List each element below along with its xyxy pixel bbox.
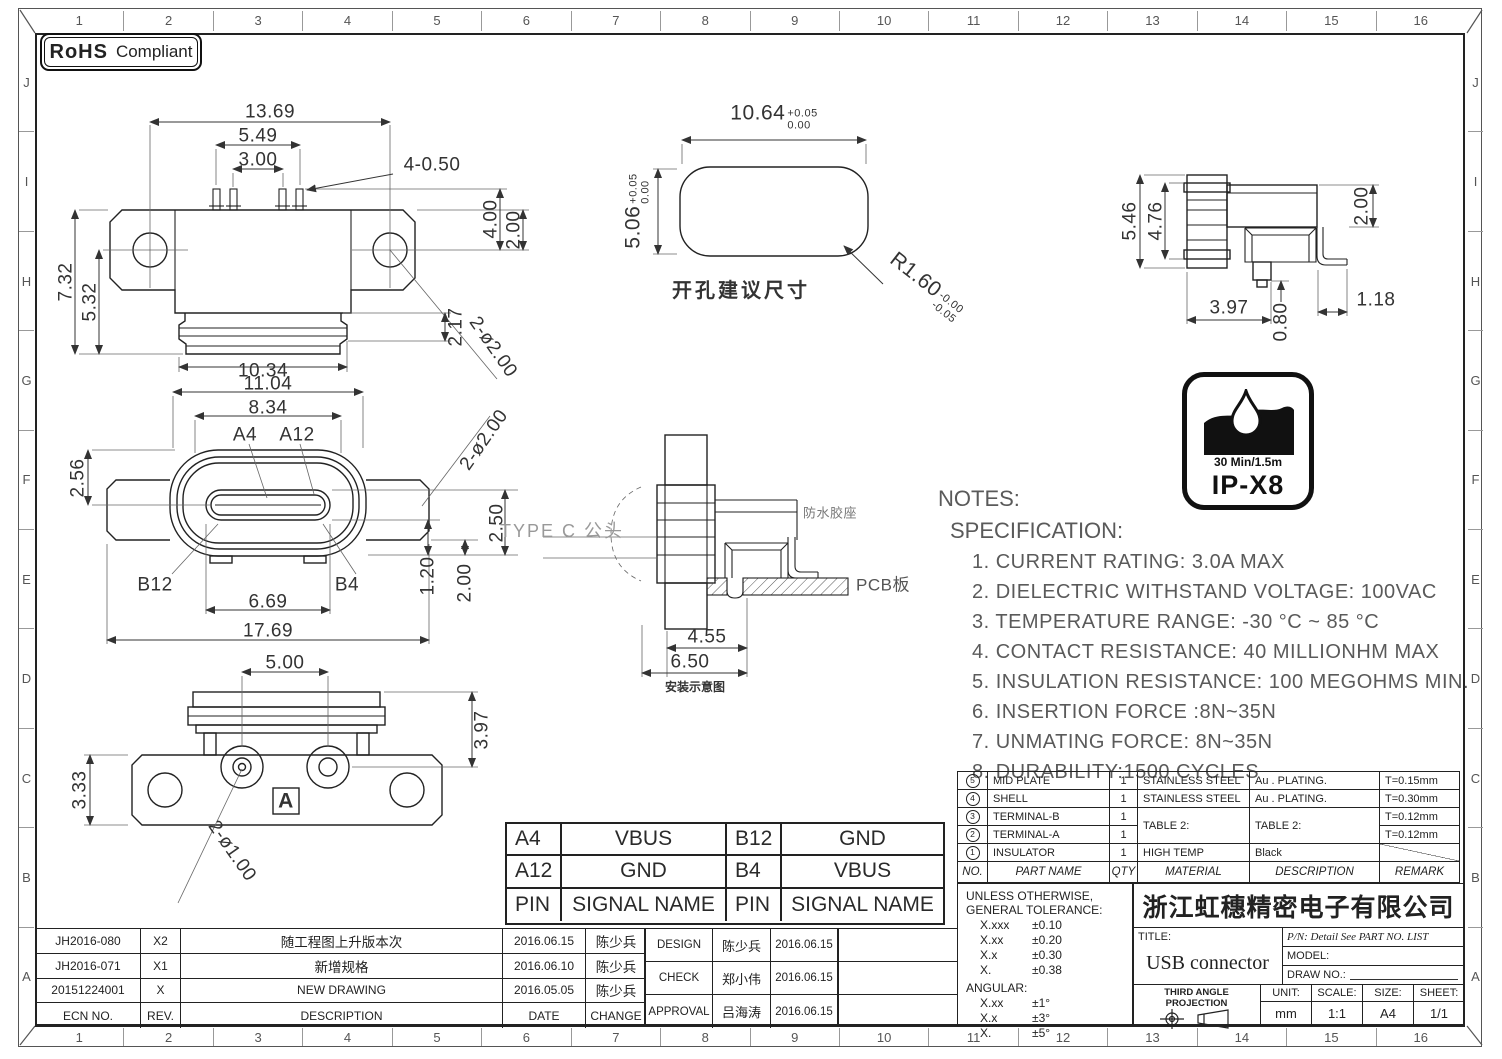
dim-side-118: 1.18 <box>1357 291 1396 310</box>
bom-material: STAINLESS STEEL <box>1138 772 1250 790</box>
zone-row: B <box>19 827 34 926</box>
bom-qty: 1 <box>1110 772 1138 790</box>
pin-header: SIGNAL NAME <box>562 889 727 921</box>
pin-cell: B4 <box>727 856 782 888</box>
rev-rev: X <box>141 979 181 1004</box>
bom-part: MID PLATE <box>988 772 1110 790</box>
projection-label: THIRD ANGLE PROJECTION <box>1133 987 1260 1009</box>
tolerance-line1: UNLESS OTHERWISE, <box>966 889 1133 903</box>
bom-desc-span: TABLE 2: <box>1250 808 1380 844</box>
angular-row: X.x±3° <box>980 1011 1133 1025</box>
zone-col: 3 <box>213 1028 302 1046</box>
size-value: A4 <box>1363 1002 1413 1025</box>
zone-col: 3 <box>213 11 302 31</box>
part-number: P/N: Detail See PART NO. LIST <box>1283 928 1464 947</box>
dim-face-669: 6.69 <box>249 593 288 612</box>
zone-row: A <box>19 927 34 1026</box>
signature-empty-cells <box>838 928 958 1027</box>
pin-signal-table: A4 VBUS B12 GND A12 GND B4 VBUS PIN SIGN… <box>505 822 945 925</box>
zone-row: J <box>19 33 34 131</box>
pin-cell: GND <box>782 824 943 856</box>
dim-face-120: 1.20 <box>419 557 438 596</box>
bom-no: 5 <box>958 772 988 790</box>
bom-remark: T=0.12mm <box>1380 826 1459 844</box>
dim-front-1369: 13.69 <box>245 103 295 122</box>
approval-name: 郑小伟 <box>713 962 771 995</box>
zone-col: 1 <box>35 1028 123 1046</box>
rev-header-desc: DESCRIPTION <box>181 1003 503 1028</box>
scale-cell: SCALE: 1:1 <box>1312 985 1363 1025</box>
zone-col: 12 <box>1018 11 1107 31</box>
bom-qty: 1 <box>1110 826 1138 844</box>
rev-ecn: JH2016-071 <box>36 954 141 979</box>
dim-cutout-height-value: 5.06 <box>621 206 644 249</box>
notes-block: NOTES: SPECIFICATION: 1. CURRENT RATING:… <box>938 486 1478 784</box>
zone-col: 5 <box>392 1028 481 1046</box>
mount-plug-label: TYPE C 公头 <box>500 522 624 540</box>
mount-caption: 安装示意图 <box>665 678 725 695</box>
pin-header: PIN <box>727 889 782 921</box>
zone-col: 16 <box>1376 11 1465 31</box>
ipx8-rating: 30 Min/1.5m <box>1187 455 1309 469</box>
dim-front-300: 3.00 <box>239 151 278 170</box>
rev-desc: 随工程图上升版本次 <box>181 929 503 954</box>
size-cell: SIZE: A4 <box>1363 985 1414 1025</box>
dim-face-1104: 11.04 <box>244 375 293 394</box>
title-block: 浙江虹穗精密电子有限公司 TITLE: USB connector P/N: D… <box>1132 883 1465 1027</box>
rev-by: 陈少兵 <box>586 979 646 1004</box>
zone-col: 14 <box>1197 11 1286 31</box>
dim-bottom-397: 3.97 <box>473 711 492 750</box>
compliant-label: Compliant <box>116 42 193 62</box>
approval-role: APPROVAL <box>646 995 713 1028</box>
bom-table: 5 MID PLATE 1 STAINLESS STEEL Au . PLATI… <box>957 771 1460 883</box>
zone-col: 8 <box>660 1028 749 1046</box>
zone-row: C <box>19 728 34 827</box>
unit-cell: UNIT: mm <box>1261 985 1312 1025</box>
pin-cell: A12 <box>507 856 562 888</box>
dim-front-732: 7.32 <box>57 263 76 302</box>
dim-face-256: 2.56 <box>69 459 88 498</box>
tolerance-row: X.xxx±0.10 <box>980 918 1133 932</box>
note-item: 5. INSULATION RESISTANCE: 100 MEGOHMS MI… <box>972 671 1478 694</box>
third-angle-projection-icon <box>1154 1009 1240 1029</box>
zone-row: A <box>1468 927 1483 1026</box>
dim-cutout-width-tol: +0.050.00 <box>787 108 817 131</box>
bom-no: 4 <box>958 790 988 808</box>
rev-rev: X2 <box>141 929 181 954</box>
zone-col: 2 <box>123 1028 212 1046</box>
notes-subtitle: SPECIFICATION: <box>950 518 1478 544</box>
bom-material: HIGH TEMP <box>1138 844 1250 862</box>
tolerance-block: UNLESS OTHERWISE, GENERAL TOLERANCE: X.x… <box>957 883 1134 1027</box>
zone-ruler-top: 12345678910111213141516 <box>35 11 1465 31</box>
dim-mount-455: 4.55 <box>688 628 727 647</box>
zone-col: 15 <box>1286 11 1375 31</box>
zone-col: 4 <box>302 1028 391 1046</box>
rev-header-ecn: ECN NO. <box>36 1003 141 1028</box>
cutout-caption: 开孔建议尺寸 <box>672 274 810 303</box>
bom-part: TERMINAL-B <box>988 808 1110 826</box>
drawing-title: USB connector <box>1133 952 1282 975</box>
title-cell: TITLE: USB connector <box>1133 928 1283 984</box>
bom-part: TERMINAL-A <box>988 826 1110 844</box>
dim-cutout-width-value: 10.64 <box>730 101 785 124</box>
pin-cell: A4 <box>507 824 562 856</box>
rev-date: 2016.05.05 <box>503 979 586 1004</box>
zone-col: 15 <box>1286 1028 1375 1046</box>
bom-header-desc: DESCRIPTION <box>1250 862 1380 882</box>
zone-col: 10 <box>839 11 928 31</box>
dim-front-200: 2.00 <box>505 211 524 250</box>
bom-remark: T=0.12mm <box>1380 808 1459 826</box>
bom-remark: T=0.30mm <box>1380 790 1459 808</box>
zone-row: B <box>1468 827 1483 926</box>
rev-desc: NEW DRAWING <box>181 979 503 1004</box>
angular-label: ANGULAR: <box>966 981 1133 995</box>
sheet-value: 1/1 <box>1414 1002 1464 1025</box>
zone-col: 13 <box>1107 11 1196 31</box>
dim-front-549: 5.49 <box>239 127 278 146</box>
note-item: 3. TEMPERATURE RANGE: -30 °C ~ 85 °C <box>972 611 1478 634</box>
rohs-badge: RoHS Compliant <box>40 33 202 71</box>
bom-part: SHELL <box>988 790 1110 808</box>
zone-col: 9 <box>750 11 839 31</box>
bom-material: STAINLESS STEEL <box>1138 790 1250 808</box>
draw-no-line <box>1350 971 1458 980</box>
approval-role: DESIGN <box>646 929 713 962</box>
bom-qty: 1 <box>1110 790 1138 808</box>
approval-name: 吕海涛 <box>713 995 771 1028</box>
dim-front-532: 5.32 <box>81 283 100 322</box>
title-label: TITLE: <box>1138 931 1171 943</box>
drawing-sheet: 12345678910111213141516 1234567891011121… <box>0 0 1502 1059</box>
bom-desc: Au . PLATING. <box>1250 772 1380 790</box>
draw-no-label: DRAW NO.: <box>1283 966 1464 984</box>
rev-by: 陈少兵 <box>586 929 646 954</box>
rohs-badge-inner: RoHS Compliant <box>44 37 198 67</box>
zone-ruler-left: JIHGFEDCBA <box>19 33 34 1026</box>
pin-label-a12: A12 <box>279 426 314 445</box>
company-name: 浙江虹穗精密电子有限公司 <box>1133 884 1464 928</box>
angular-row: X.xx±1° <box>980 996 1133 1010</box>
approval-date: 2016.06.15 <box>771 929 837 962</box>
bom-header-material: MATERIAL <box>1138 862 1250 882</box>
pin-label-b4: B4 <box>335 576 359 595</box>
note-item: 6. INSERTION FORCE :8N~35N <box>972 701 1478 724</box>
bom-no: 3 <box>958 808 988 826</box>
tolerance-row: X.x±0.30 <box>980 948 1133 962</box>
model-label: MODEL: <box>1283 947 1464 966</box>
rev-header-date: DATE <box>503 1003 586 1028</box>
rev-rev: X1 <box>141 954 181 979</box>
dim-cutout-height: 5.06+0.050.00 <box>622 173 651 248</box>
rev-desc: 新增规格 <box>181 954 503 979</box>
zone-col: 1 <box>35 11 123 31</box>
pin-cell: B12 <box>727 824 782 856</box>
bom-part: INSULATOR <box>988 844 1110 862</box>
zone-col: 16 <box>1376 1028 1465 1046</box>
dim-face-1769: 17.69 <box>243 622 293 641</box>
pin-header: SIGNAL NAME <box>782 889 943 921</box>
dim-side-476: 4.76 <box>1147 202 1166 241</box>
pin-label-a4: A4 <box>233 426 257 445</box>
scale-value: 1:1 <box>1312 1002 1362 1025</box>
tolerance-row: X.±0.38 <box>980 963 1133 977</box>
zone-col: 11 <box>928 11 1017 31</box>
bottom-view-drawing <box>60 655 490 905</box>
zone-col: 6 <box>481 1028 570 1046</box>
dim-side-397: 3.97 <box>1210 299 1249 318</box>
approval-date: 2016.06.15 <box>771 962 837 995</box>
zone-col: 7 <box>571 11 660 31</box>
rohs-label: RoHS <box>50 41 108 64</box>
rev-date: 2016.06.15 <box>503 929 586 954</box>
bom-qty: 1 <box>1110 844 1138 862</box>
sheet-cell: SHEET: 1/1 <box>1414 985 1464 1025</box>
note-item: 2. DIELECTRIC WITHSTAND VOLTAGE: 100VAC <box>972 581 1478 604</box>
rev-ecn: JH2016-080 <box>36 929 141 954</box>
pin-cell: VBUS <box>562 824 727 856</box>
bom-header-qty: QTY <box>1110 862 1138 882</box>
projection-cell: THIRD ANGLE PROJECTION <box>1133 985 1261 1025</box>
zone-row: I <box>19 131 34 230</box>
notes-title: NOTES: <box>938 486 1478 512</box>
section-label-a: A <box>278 791 294 812</box>
bom-no: 2 <box>958 826 988 844</box>
approval-table: DESIGN 陈少兵 2016.06.15 CHECK 郑小伟 2016.06.… <box>645 928 838 1027</box>
zone-row: J <box>1468 33 1483 131</box>
dim-bottom-333: 3.33 <box>71 771 90 810</box>
approval-role: CHECK <box>646 962 713 995</box>
pin-label-b12: B12 <box>137 576 172 595</box>
note-item: 1. CURRENT RATING: 3.0A MAX <box>972 551 1478 574</box>
dim-bottom-500: 5.00 <box>266 654 305 673</box>
bom-header-remark: REMARK <box>1380 862 1459 882</box>
approval-date: 2016.06.15 <box>771 995 837 1028</box>
sheet-label: SHEET: <box>1414 985 1464 1002</box>
dim-side-546: 5.46 <box>1121 202 1140 241</box>
dim-front-450: 4-0.50 <box>404 156 461 175</box>
dim-side-080: 0.80 <box>1272 303 1291 342</box>
dim-side-200: 2.00 <box>1353 187 1372 226</box>
scale-label: SCALE: <box>1312 985 1362 1002</box>
zone-col: 4 <box>302 11 391 31</box>
rev-header-change: CHANGE <box>586 1003 646 1028</box>
dim-front-400: 4.00 <box>482 200 501 239</box>
zone-col: 2 <box>123 11 212 31</box>
rev-ecn: 20151224001 <box>36 979 141 1004</box>
tolerance-line2: GENERAL TOLERANCE: <box>966 903 1133 917</box>
mount-seal-label: 防水胶座 <box>803 507 857 520</box>
angular-row: X.±5° <box>980 1026 1133 1040</box>
bom-desc: Au . PLATING. <box>1250 790 1380 808</box>
zone-col: 7 <box>571 1028 660 1046</box>
bom-qty: 1 <box>1110 808 1138 826</box>
zone-row: G <box>19 330 34 429</box>
water-drop-icon <box>1194 389 1302 455</box>
rev-header-rev: REV. <box>141 1003 181 1028</box>
zone-row: H <box>19 231 34 330</box>
zone-row: E <box>19 529 34 628</box>
zone-row: D <box>19 628 34 727</box>
pin-cell: GND <box>562 856 727 888</box>
pin-cell: VBUS <box>782 856 943 888</box>
dim-cutout-width: 10.64+0.050.00 <box>730 102 817 131</box>
mount-pcb-label: PCB板 <box>856 577 910 594</box>
bom-material-span: TABLE 2: <box>1138 808 1250 844</box>
note-item: 7. UNMATING FORCE: 8N~35N <box>972 731 1478 754</box>
dim-face-834: 8.34 <box>249 399 288 418</box>
bom-header-part: PART NAME <box>988 862 1110 882</box>
zone-col: 10 <box>839 1028 928 1046</box>
dim-face-200: 2.00 <box>456 564 475 603</box>
bom-header-no: NO. <box>958 862 988 882</box>
size-label: SIZE: <box>1363 985 1413 1002</box>
tolerance-row: X.xx±0.20 <box>980 933 1133 947</box>
approval-name: 陈少兵 <box>713 929 771 962</box>
dim-front-217: 2.17 <box>447 308 466 347</box>
rev-by: 陈少兵 <box>586 954 646 979</box>
zone-col: 9 <box>750 1028 839 1046</box>
rev-date: 2016.06.10 <box>503 954 586 979</box>
dim-cutout-height-tol: +0.050.00 <box>628 173 651 203</box>
unit-value: mm <box>1261 1002 1311 1025</box>
zone-col: 6 <box>481 11 570 31</box>
revision-table: JH2016-080 X2 随工程图上升版本次 2016.06.15 陈少兵 J… <box>35 928 645 1027</box>
bom-remark: T=0.15mm <box>1380 772 1459 790</box>
bom-no: 1 <box>958 844 988 862</box>
pin-header: PIN <box>507 889 562 921</box>
front-view-drawing <box>55 95 545 380</box>
zone-col: 8 <box>660 11 749 31</box>
bom-remark-diagonal <box>1380 844 1459 862</box>
unit-label: UNIT: <box>1261 985 1311 1002</box>
zone-col: 5 <box>392 11 481 31</box>
bom-desc: Black <box>1250 844 1380 862</box>
face-view-drawing <box>60 378 550 678</box>
note-item: 4. CONTACT RESISTANCE: 40 MILLIONHM MAX <box>972 641 1478 664</box>
zone-row: F <box>19 430 34 529</box>
dim-mount-650: 6.50 <box>671 653 710 672</box>
